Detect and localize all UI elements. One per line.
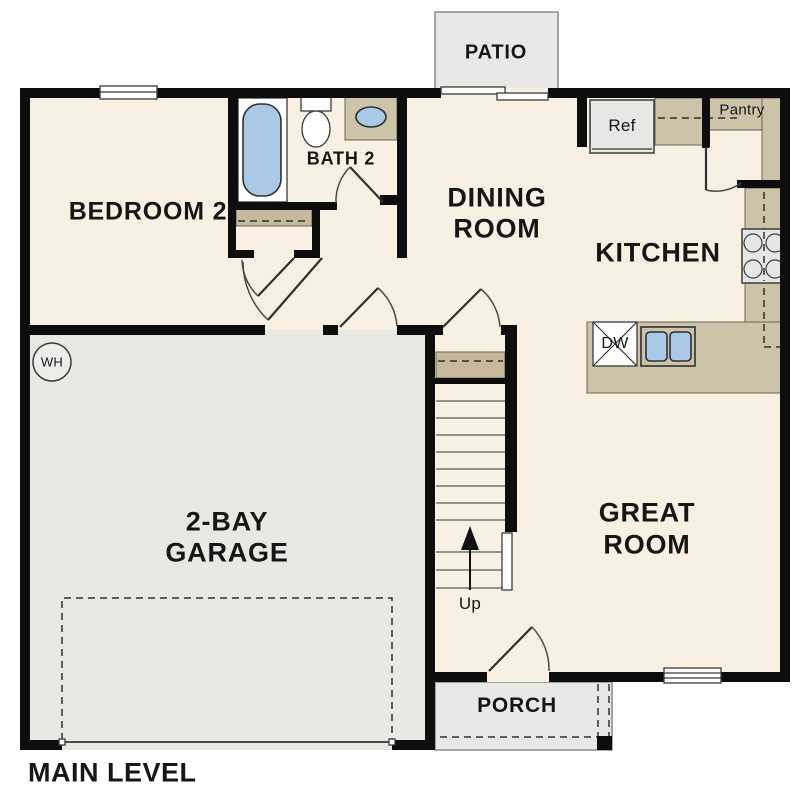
- stove-icon: [742, 229, 786, 283]
- room-label-garage-line2: GARAGE: [165, 538, 288, 569]
- room-label-garage-line1: 2-BAY: [186, 507, 269, 538]
- floor-plan: PATIO BEDROOM 2 BATH 2 DINING ROOM KITCH…: [0, 0, 810, 810]
- plan-title: MAIN LEVEL: [28, 758, 197, 789]
- bathtub-icon: [238, 98, 287, 202]
- floor-plan-drawing: [0, 0, 810, 810]
- stair-handrail: [502, 533, 512, 590]
- room-label-patio: PATIO: [465, 42, 527, 65]
- great-room-window: [664, 668, 721, 683]
- garage-overhead-door: [59, 739, 395, 750]
- room-label-bedroom2: BEDROOM 2: [69, 198, 228, 227]
- porch-post: [597, 736, 612, 750]
- room-label-kitchen: KITCHEN: [595, 238, 721, 269]
- label-dw: DW: [601, 335, 628, 353]
- toilet-icon: [301, 96, 331, 147]
- room-label-great-line1: GREAT: [599, 498, 696, 529]
- room-label-dining-line1: DINING: [447, 183, 546, 214]
- label-wh: WH: [41, 355, 63, 370]
- label-pantry: Pantry: [719, 102, 764, 119]
- room-label-great-line2: ROOM: [603, 530, 690, 561]
- label-up: Up: [459, 594, 481, 614]
- label-ref: Ref: [608, 116, 635, 136]
- room-label-porch: PORCH: [477, 694, 557, 718]
- bath-sink-icon: [345, 97, 397, 140]
- room-label-bath2: BATH 2: [307, 149, 375, 170]
- bedroom-window: [100, 86, 157, 99]
- kitchen-sink-icon: [641, 327, 695, 366]
- room-label-dining-line2: ROOM: [453, 214, 540, 245]
